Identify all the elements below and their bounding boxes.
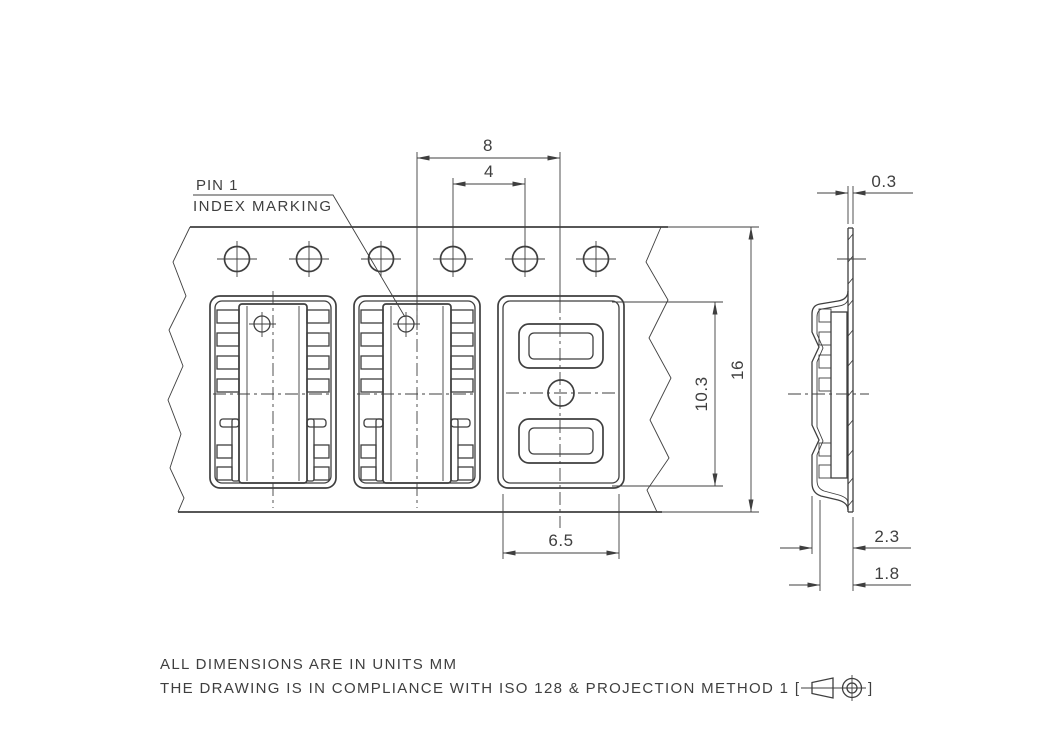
canvas-background bbox=[0, 0, 1053, 745]
pin1-label-line2: INDEX MARKING bbox=[193, 198, 332, 215]
dim-pocket-length-value: 10.3 bbox=[692, 376, 711, 411]
dim-pocket-width-value: 6.5 bbox=[548, 531, 573, 550]
note-units: ALL DIMENSIONS ARE IN UNITS MM bbox=[160, 656, 457, 673]
dim-sprocket-pitch-value: 4 bbox=[484, 162, 494, 181]
carrier-tape-drawing: PIN 1 INDEX MARKING 8 4 6.5 bbox=[0, 0, 1053, 745]
pin1-label-line1: PIN 1 bbox=[196, 177, 239, 194]
note-compliance: THE DRAWING IS IN COMPLIANCE WITH ISO 12… bbox=[160, 680, 800, 697]
dim-tape-thickness-value: 0.3 bbox=[871, 172, 896, 191]
dim-pocket-pitch-value: 8 bbox=[483, 136, 493, 155]
dim-pocket-depth-value: 1.8 bbox=[874, 564, 899, 583]
dim-tape-width-value: 16 bbox=[728, 360, 747, 380]
dim-emboss-height-value: 2.3 bbox=[874, 527, 899, 546]
drawing-page: PIN 1 INDEX MARKING 8 4 6.5 bbox=[0, 0, 1053, 745]
note-compliance-close-bracket: ] bbox=[868, 680, 873, 697]
